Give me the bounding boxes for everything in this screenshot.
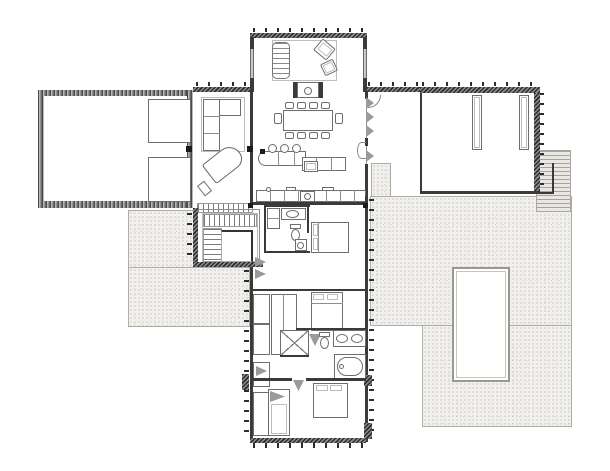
north-wall-east-ticks — [368, 82, 420, 86]
wall-bath2-bed3-e — [306, 378, 366, 381]
bathtub-faucet — [339, 364, 344, 369]
stair-landing — [221, 230, 253, 262]
door-swing-kitchen — [357, 142, 366, 159]
lounge-wall-right-a — [363, 37, 367, 49]
wing-south-ticks — [253, 443, 365, 448]
kitchen-counter-div-2 — [331, 157, 332, 171]
lounge-wall-left-b — [250, 78, 254, 92]
bath1-sink-basin — [286, 210, 299, 218]
dining-chair-w — [274, 113, 282, 124]
terrace-west-lower — [128, 267, 250, 327]
door-symbol-bed1-b — [255, 269, 266, 279]
column-wing-nw — [248, 203, 253, 208]
garage-wall-left — [420, 93, 422, 191]
stair-upper-flight — [203, 214, 257, 227]
column-music-east — [247, 146, 253, 152]
lounge-wall-left-a — [250, 37, 254, 49]
wing-east-ticks — [369, 199, 374, 437]
lounge-sofa — [272, 42, 290, 79]
kitchen-wall-counter-d6 — [354, 190, 355, 202]
column-music-west — [186, 146, 192, 152]
fireplace-side-right — [319, 82, 323, 98]
kitchen-island — [258, 151, 306, 166]
bath2-sink-basin-1 — [336, 334, 348, 343]
kitchen-stool-3 — [292, 144, 301, 153]
door-swing-breezeway — [368, 95, 381, 108]
stair-wall-west — [193, 208, 198, 267]
bed-1-pillow-a — [313, 224, 318, 236]
folding-door-panel-2 — [366, 111, 374, 123]
music-sofa-left — [203, 99, 220, 151]
kitchen-stool-2 — [280, 144, 289, 153]
kitchen-stool-1 — [268, 144, 277, 153]
wall-bath2-bed3-w — [252, 378, 292, 381]
dining-chair-s2 — [297, 132, 306, 139]
west-room-wall-top — [38, 90, 193, 96]
lounge-window-right — [363, 49, 367, 78]
lounge-wall-top — [250, 33, 367, 38]
bath1-wall-left — [264, 205, 266, 253]
corridor-closet-3 — [253, 362, 270, 387]
dining-chair-s1 — [285, 132, 294, 139]
stair-wall-south — [193, 262, 263, 267]
bed-3-pillow-a — [316, 385, 328, 391]
wing-east-pier-2 — [364, 423, 372, 439]
kitchen-wall-counter-d5 — [340, 190, 341, 202]
shower-diag-2 — [280, 330, 309, 356]
stair-lower-flight — [203, 228, 222, 262]
music-sofa-cushion-1 — [204, 116, 220, 117]
west-room-wall-left — [38, 90, 44, 208]
folding-door-panel-3 — [366, 125, 374, 137]
bath1-closet-shelf — [267, 218, 280, 219]
stair-west-ticks — [187, 213, 192, 262]
lounge-top-ticks — [253, 28, 365, 32]
kitchen-wall-counter-d1 — [270, 190, 271, 202]
west-room-wall-bottom — [38, 201, 193, 208]
lounge-wall-right-b — [363, 78, 367, 92]
north-wall-west-ticks — [196, 82, 250, 86]
dining-chair-n2 — [297, 102, 306, 109]
dining-chair-s4 — [321, 132, 330, 139]
fireplace-flue — [304, 87, 312, 95]
bed-2-pillow-a — [313, 294, 324, 300]
column-kitchen — [260, 149, 265, 154]
music-threshold-steps — [197, 203, 253, 213]
music-sofa-cushion-2 — [204, 133, 220, 134]
garage-wall-top — [420, 87, 540, 93]
bed3-wardrobe-inner — [271, 404, 287, 434]
wing-east-wall — [365, 196, 368, 442]
wing-west-ticks — [244, 270, 249, 436]
garage-roof-slot-2-inner — [521, 97, 527, 148]
exterior-steps-rail-v — [552, 163, 554, 194]
bath2-wall-mid — [280, 355, 309, 357]
bath1-wall-bottom — [264, 251, 310, 253]
dining-chair-n1 — [285, 102, 294, 109]
floor-plan-canvas — [0, 0, 610, 471]
bath1-wall-top — [264, 205, 310, 207]
door-symbol-bed3 — [293, 380, 304, 391]
garage-right-ticks — [540, 93, 544, 193]
kitchen-sink-basin — [306, 163, 316, 170]
piano-bench — [197, 181, 212, 197]
kitchen-island-div-1 — [278, 151, 279, 166]
folding-door-panel-4 — [366, 150, 374, 162]
column-wing-ne — [363, 203, 368, 208]
swimming-pool — [452, 267, 510, 382]
stair-edge-north — [198, 209, 260, 210]
bath1-tray-drain — [297, 242, 304, 249]
bath2-sink-basin-2 — [351, 334, 363, 343]
bed-2-pillow-b — [327, 294, 338, 300]
lounge-window-left — [250, 49, 254, 78]
stair-edge-east — [259, 209, 260, 262]
kitchen-island-div-2 — [294, 151, 295, 166]
kitchen-oven-dial — [304, 193, 311, 200]
north-wall-east-seg — [367, 87, 421, 92]
dining-chair-n4 — [321, 102, 330, 109]
fireplace-side-left — [293, 82, 297, 98]
bed-1-headline — [318, 222, 319, 253]
dining-table — [283, 110, 333, 131]
garage-roof-slot-1-inner — [474, 97, 480, 148]
bed-1-pillow-b — [313, 238, 318, 250]
wall-bed1-bed2 — [252, 289, 366, 291]
kitchen-wall-counter-d2 — [284, 190, 285, 202]
kitchen-counter-item-1 — [266, 187, 271, 192]
kitchen-wall-counter-d4 — [326, 190, 327, 202]
corridor-closet-2 — [253, 324, 270, 355]
kitchen-wall-counter-d3 — [298, 190, 299, 202]
dining-chair-s3 — [309, 132, 318, 139]
dining-chair-n3 — [309, 102, 318, 109]
corridor-closet-1 — [253, 294, 270, 324]
north-wall-west-seg — [193, 87, 251, 92]
bed-3-pillow-b — [330, 385, 342, 391]
terrace-east-strip — [371, 163, 391, 197]
bath1-wall-right — [307, 205, 309, 233]
dining-chair-e — [335, 113, 343, 124]
garage-top-ticks — [422, 82, 540, 86]
wing-west-pier — [242, 374, 249, 390]
west-room-rect-lower — [148, 157, 191, 202]
bath2-toilet-bowl — [320, 337, 329, 349]
kitchen-counter-item-3 — [322, 187, 334, 191]
west-room-rect-upper — [148, 99, 191, 143]
bed-2-blanket — [311, 303, 343, 304]
kitchen-counter-item-2 — [286, 187, 296, 191]
garage-wall-bottom — [420, 191, 540, 194]
